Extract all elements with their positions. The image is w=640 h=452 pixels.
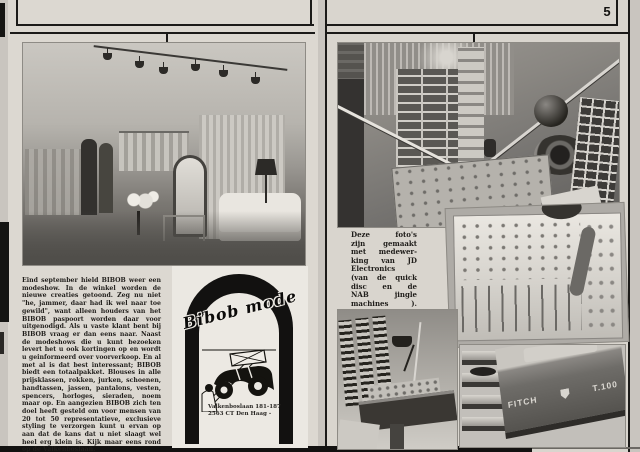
desk-lamp-arm bbox=[403, 345, 414, 372]
studio-speaker-cabinet bbox=[338, 79, 364, 228]
flower-bouquet bbox=[123, 189, 159, 213]
mic-stand-pole bbox=[413, 322, 422, 388]
machine-faceplate: FITCH T.100 bbox=[507, 379, 618, 410]
floor-highlight bbox=[337, 419, 380, 450]
page-number: 5 bbox=[597, 3, 617, 21]
ceiling-spotlight bbox=[103, 53, 112, 60]
left-header-rule-1 bbox=[16, 24, 314, 26]
article-bibob: Eind september hield BIBOB weer een mode… bbox=[22, 277, 161, 452]
vintage-car-illustration bbox=[200, 328, 278, 412]
ceiling-spotlight bbox=[251, 77, 260, 84]
ad-address: Valkenboslaan 181-187 2563 CT Den Haag - bbox=[208, 404, 282, 418]
person-silhouette bbox=[99, 143, 113, 213]
ceiling-spotlight bbox=[191, 64, 200, 71]
studio-desk-photo bbox=[337, 309, 458, 450]
fitch-cart-machine: FITCH T.100 bbox=[495, 344, 626, 439]
fader-bank bbox=[461, 284, 582, 332]
console-panel bbox=[453, 213, 623, 342]
scan-edge-mark-low bbox=[0, 332, 4, 354]
photo-floor-shadow bbox=[23, 211, 306, 266]
center-gutter-rule bbox=[325, 0, 327, 452]
ad-address-line2: 2563 CT Den Haag - bbox=[208, 411, 282, 418]
left-page-right-border bbox=[310, 0, 312, 26]
cart-machine-stack-photo: FITCH T.100 bbox=[459, 344, 626, 448]
floor-lamp-stem bbox=[265, 175, 267, 203]
mixing-console-photo bbox=[445, 202, 630, 348]
radio-studio-photo bbox=[337, 42, 620, 228]
microphone bbox=[484, 139, 496, 157]
ceiling-spotlight bbox=[135, 61, 144, 68]
magazine-spread-scan: 5 Eind september hield BIBOB weer een mo… bbox=[0, 0, 640, 452]
small-turntable-platter bbox=[470, 367, 496, 376]
desk-leg bbox=[390, 424, 404, 450]
right-page-right-border bbox=[628, 0, 630, 452]
floor-lamp-shade bbox=[255, 159, 277, 175]
ceiling-spotlight bbox=[219, 70, 228, 77]
scan-edge-mark-middle bbox=[0, 222, 9, 322]
right-header-rule-1 bbox=[326, 24, 617, 26]
scan-edge-mark-top bbox=[0, 3, 5, 37]
brand-shield-icon bbox=[560, 388, 570, 400]
cartridge-on-top bbox=[523, 344, 597, 363]
left-header-rule-2 bbox=[10, 32, 315, 34]
caption-line: machines ). bbox=[351, 300, 417, 309]
right-header-rule-2 bbox=[326, 32, 629, 34]
clothing-rack-left bbox=[25, 149, 81, 215]
person-silhouette bbox=[81, 139, 97, 215]
studio-lamp-ball bbox=[534, 95, 568, 127]
tall-record-shelf bbox=[458, 47, 484, 169]
ceiling-spotlight bbox=[159, 67, 168, 74]
boutique-interior-photo bbox=[22, 42, 306, 266]
machine-brand-label: FITCH bbox=[507, 394, 538, 410]
desk-lamp-head bbox=[392, 336, 412, 347]
knob-grid bbox=[460, 220, 581, 280]
ad-address-line1: Valkenboslaan 181-187 bbox=[208, 404, 282, 411]
photo-caption: Deze foto's zijn gemaakt met medewer- ki… bbox=[351, 231, 417, 308]
bibob-mode-ad: Bibob mode Valkenboslaan 181-187 2563 CT… bbox=[172, 266, 308, 448]
left-page-top-border bbox=[16, 0, 18, 26]
machine-model-label: T.100 bbox=[592, 379, 619, 394]
article-body: Eind september hield BIBOB weer een mode… bbox=[22, 277, 161, 452]
